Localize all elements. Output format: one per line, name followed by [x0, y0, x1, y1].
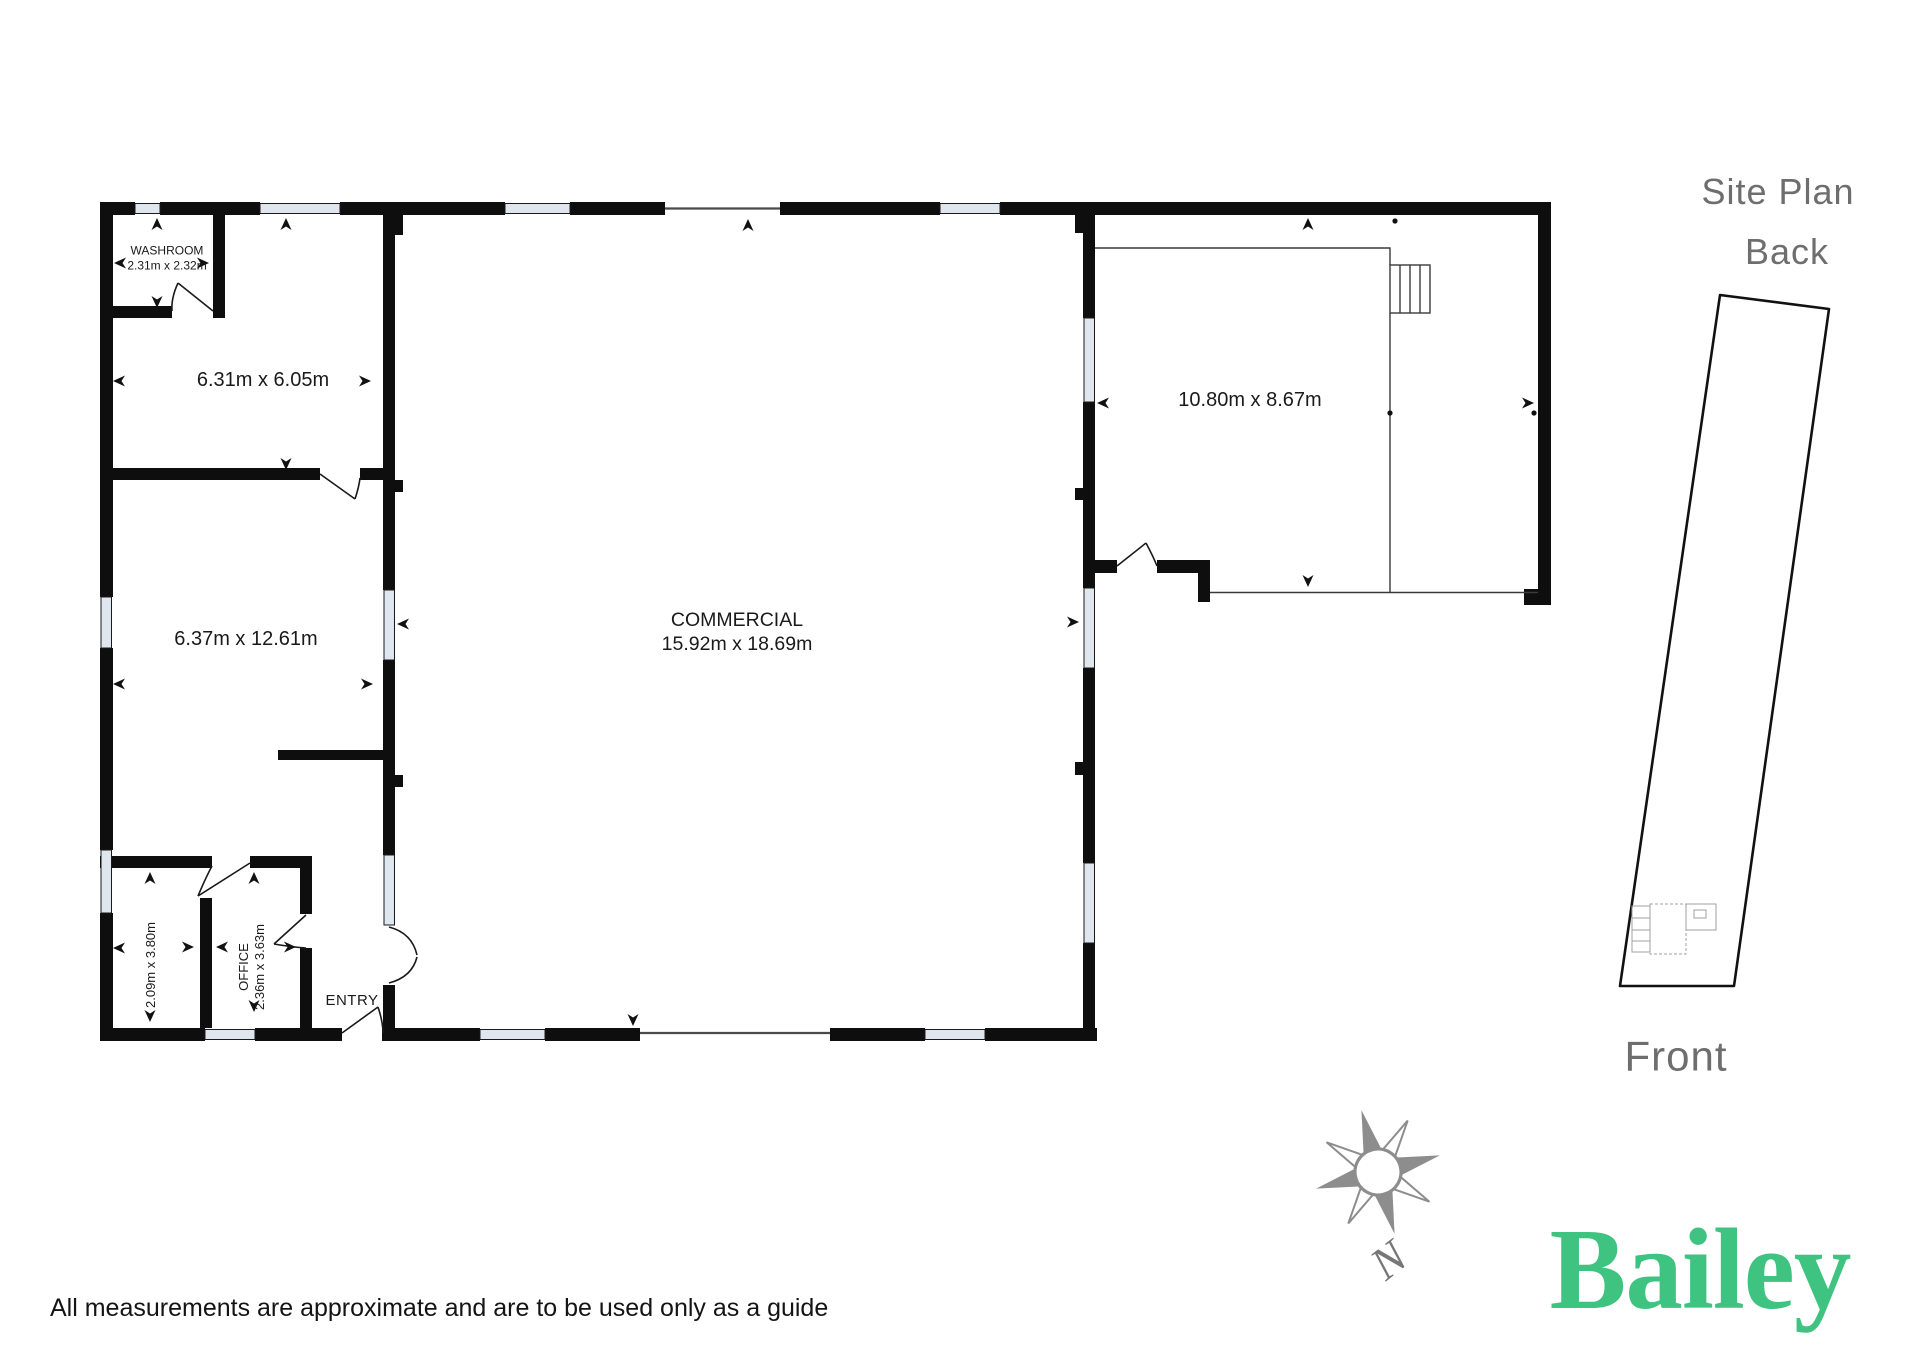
- room-637-dims: 6.37m x 12.61m: [174, 627, 317, 651]
- room-631-dims: 6.31m x 6.05m: [197, 368, 329, 392]
- office-dims: 2.36m x 3.63m: [252, 924, 268, 1010]
- room-1080-dims: 10.80m x 8.67m: [1178, 388, 1321, 412]
- site-plan-front-label: Front: [1624, 1030, 1727, 1081]
- site-plan-back-label: Back: [1745, 230, 1829, 274]
- washroom-name: WASHROOM: [127, 243, 206, 258]
- floor-plan-svg: N: [0, 0, 1920, 1357]
- disclaimer-text: All measurements are approximate and are…: [50, 1294, 828, 1323]
- reference-dots: [1387, 218, 1536, 415]
- mezzanine-outline: [1095, 248, 1538, 593]
- washroom-dims: 2.31m x 2.32m: [127, 258, 206, 273]
- commercial-dims: 15.92m x 18.69m: [662, 633, 813, 657]
- entry-label: ENTRY: [325, 992, 378, 1010]
- exterior-walls: [100, 202, 1551, 1041]
- doors: [172, 283, 1157, 1033]
- commercial-label: COMMERCIAL 15.92m x 18.69m: [662, 609, 813, 657]
- room-209-dims: 2.09m x 3.80m: [143, 922, 159, 1008]
- floor-plan-page: N WASHROOM 2.31m x 2.32m 6.31m x 6.05m 6…: [0, 0, 1920, 1357]
- office-label: OFFICE 2.36m x 3.63m: [236, 924, 269, 1010]
- bailey-logo: Bailey: [1550, 1204, 1851, 1336]
- commercial-name: COMMERCIAL: [662, 609, 813, 633]
- site-plan-parcel: [1620, 295, 1829, 986]
- dimension-arrows: [113, 218, 1534, 1026]
- site-plan-title: Site Plan: [1701, 170, 1854, 214]
- washroom-label: WASHROOM 2.31m x 2.32m: [127, 243, 206, 272]
- windows: [101, 204, 1095, 1040]
- office-name: OFFICE: [236, 924, 252, 1010]
- compass-north-label: N: [1360, 1229, 1418, 1290]
- compass-rose-icon: N: [1300, 1094, 1457, 1290]
